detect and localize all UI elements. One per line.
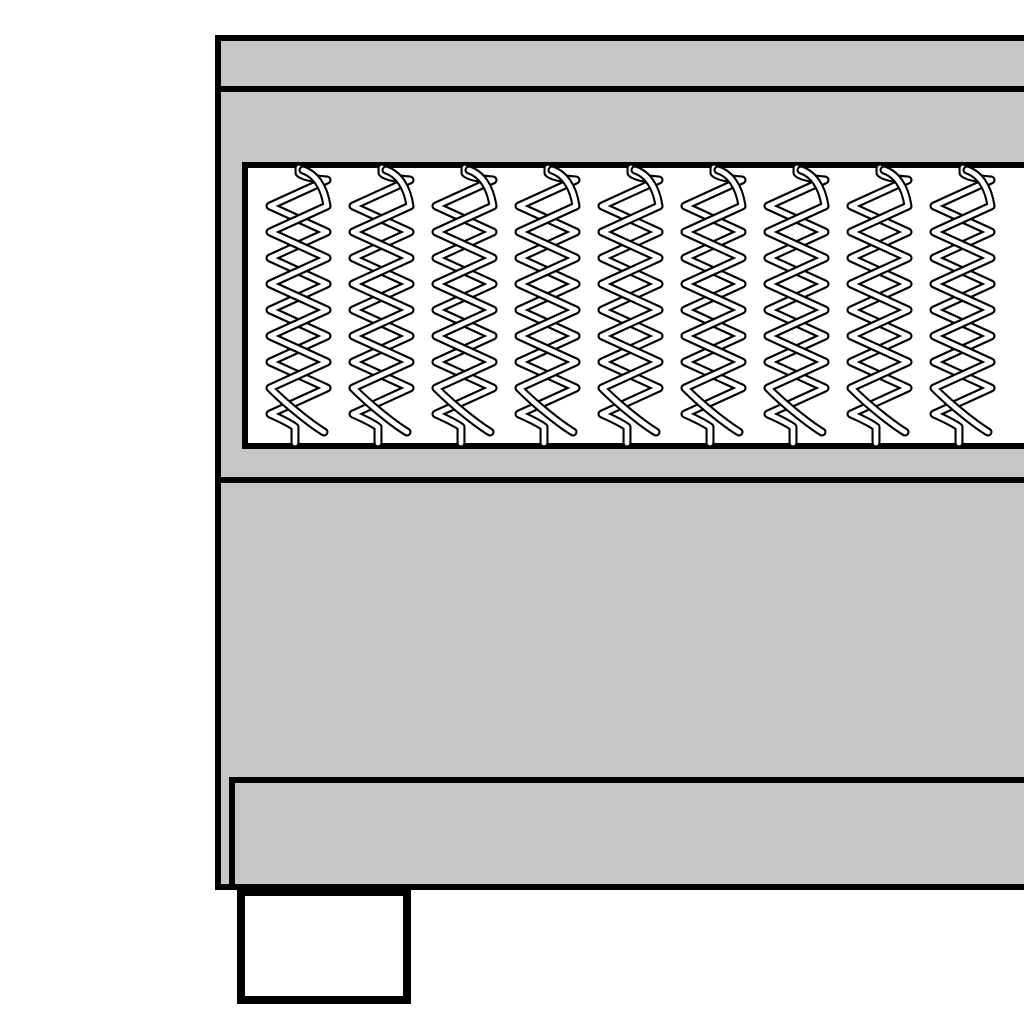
bed-top-rail (218, 38, 1024, 89)
product-illustration-canvas (0, 0, 1024, 1024)
boxspring-bed-illustration (0, 0, 1024, 1024)
bed-cross-section (218, 38, 1024, 1000)
bed-leg (241, 892, 407, 1000)
bottom-rail (232, 780, 1024, 887)
